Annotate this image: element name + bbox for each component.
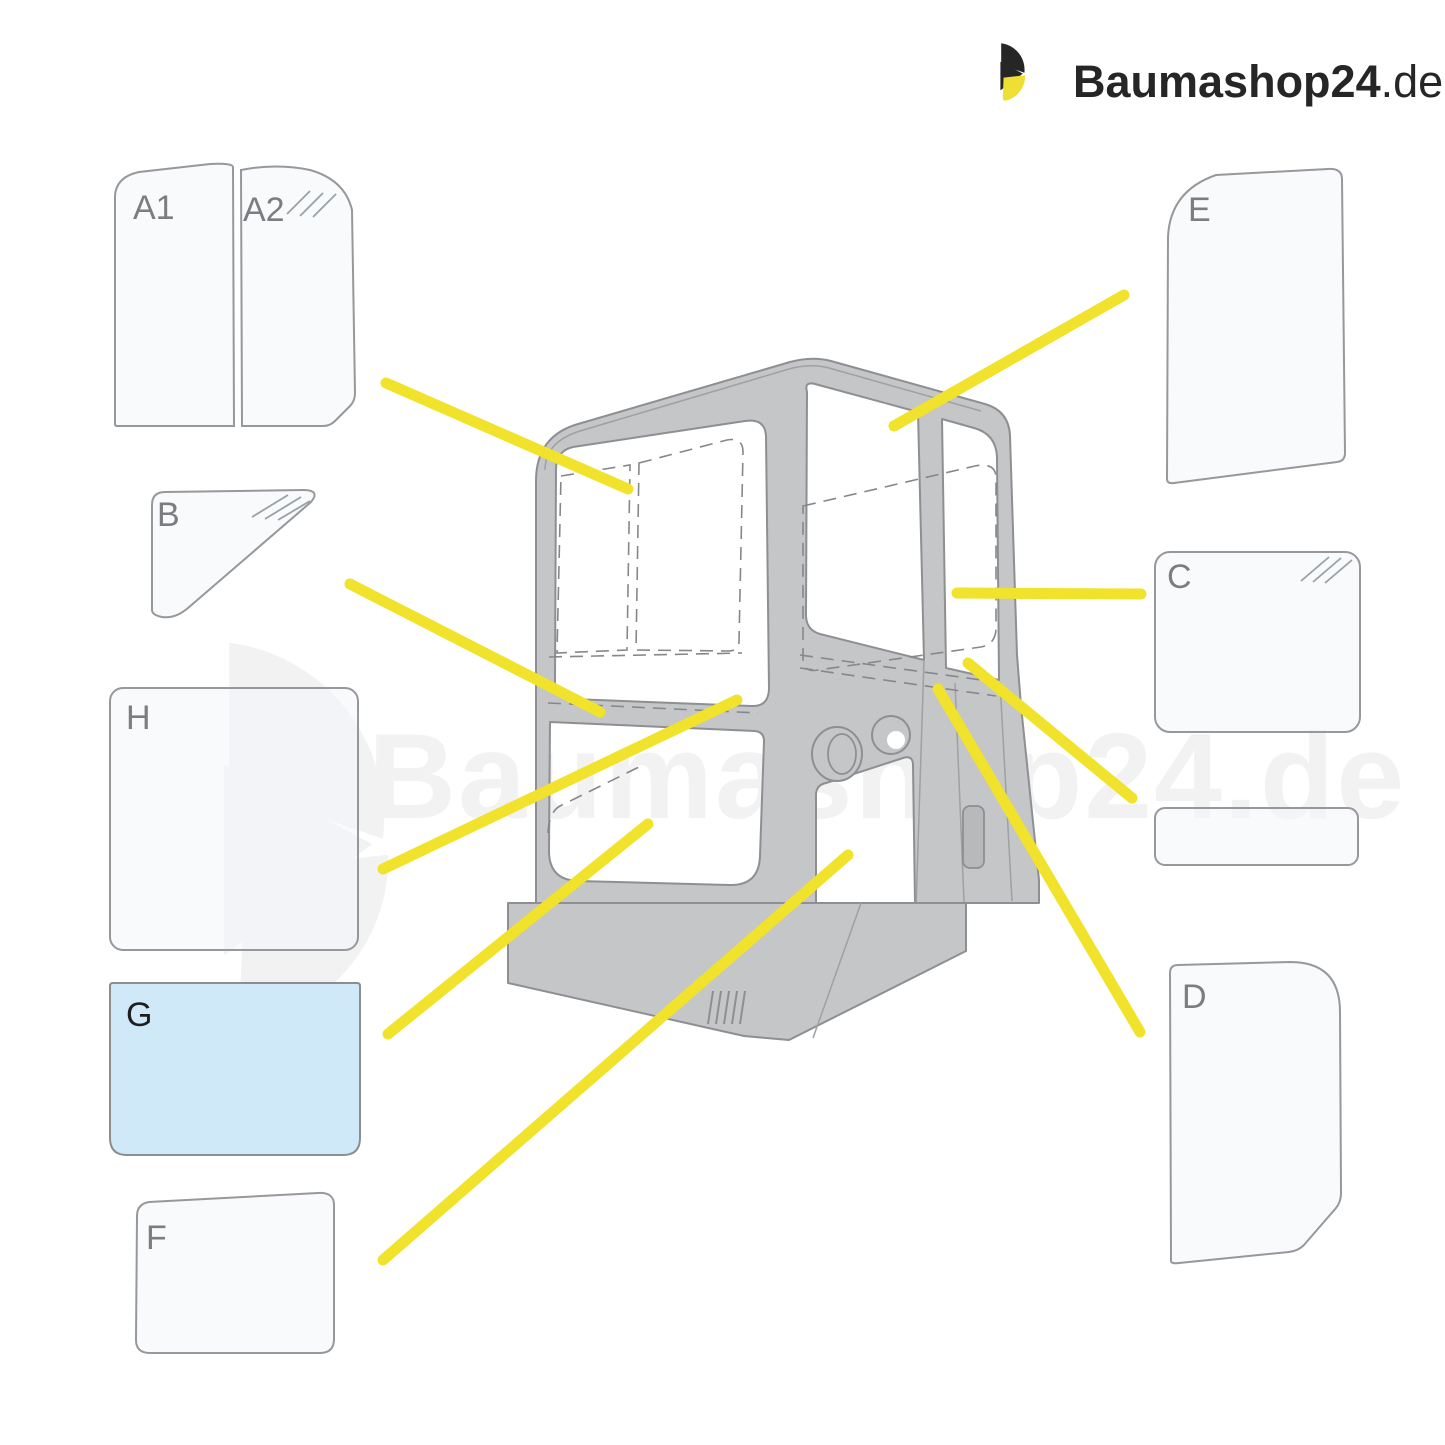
- panel-label-d: D: [1182, 978, 1207, 1016]
- leader-line-e: [894, 295, 1124, 426]
- cab-knob-left: [812, 727, 862, 781]
- glass-panel-d: D: [1170, 962, 1341, 1263]
- cab-base: [508, 903, 966, 1040]
- panel-label-a2: A2: [243, 191, 285, 229]
- glass-panel-g: G: [110, 983, 360, 1155]
- product-diagram-canvas: Baumashop24.de A1 A2 B H G F: [0, 0, 1445, 1445]
- leader-line-c: [957, 593, 1141, 594]
- cab-door-handle-recess: [963, 806, 984, 868]
- glass-panel-c: C: [1155, 552, 1360, 732]
- panel-label-a1: A1: [133, 189, 175, 227]
- brand-logo-text: Baumashop24.de: [1073, 56, 1443, 107]
- glass-panel-a1: A1: [115, 164, 234, 426]
- brand-logo-text-number: 24: [1331, 56, 1381, 107]
- panel-label-f: F: [146, 1219, 167, 1257]
- panel-label-e: E: [1188, 191, 1211, 229]
- glass-panel-strip: [1155, 808, 1358, 865]
- glass-panel-b: B: [152, 490, 315, 617]
- excavator-cab-illustration: [508, 359, 1039, 1040]
- glass-panel-h: H: [110, 688, 358, 950]
- leader-line-b: [350, 584, 600, 712]
- panel-label-c: C: [1167, 558, 1192, 596]
- panel-label-h: H: [126, 699, 151, 737]
- panel-label-b: B: [157, 496, 180, 534]
- brand-logo: Baumashop24.de: [1000, 43, 1443, 107]
- glass-panel-f: F: [136, 1193, 334, 1353]
- brand-logo-text-main: Baumashop: [1073, 56, 1331, 107]
- glass-panel-e: E: [1167, 169, 1345, 483]
- cab-knob-right: [872, 716, 910, 754]
- glass-panel-a2: A2: [241, 167, 355, 427]
- brand-logo-icon: [1000, 43, 1025, 101]
- panel-label-g: G: [126, 996, 152, 1034]
- brand-logo-text-tld: .de: [1381, 56, 1444, 107]
